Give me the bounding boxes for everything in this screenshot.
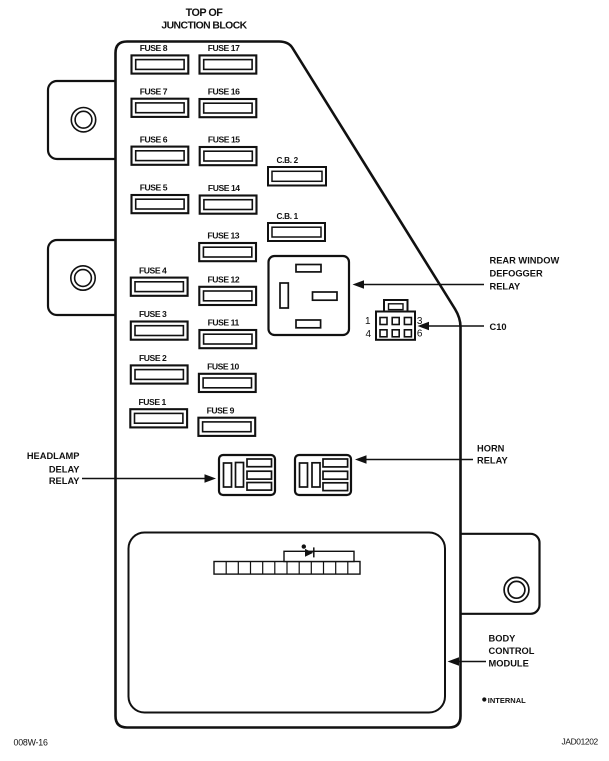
svg-text:FUSE 1: FUSE 1 xyxy=(139,397,167,407)
svg-text:FUSE 7: FUSE 7 xyxy=(140,86,168,96)
svg-text:HEADLAMP: HEADLAMP xyxy=(27,451,80,461)
svg-text:FUSE 14: FUSE 14 xyxy=(208,183,240,193)
svg-text:C10: C10 xyxy=(490,322,507,332)
svg-text:DEFOGGER: DEFOGGER xyxy=(490,268,543,278)
svg-text:FUSE 12: FUSE 12 xyxy=(208,275,240,285)
svg-text:FUSE 4: FUSE 4 xyxy=(139,265,167,275)
svg-text:JAD01202: JAD01202 xyxy=(562,737,599,747)
svg-text:FUSE 9: FUSE 9 xyxy=(207,405,235,415)
svg-text:C.B. 2: C.B. 2 xyxy=(277,156,299,165)
svg-text:FUSE 13: FUSE 13 xyxy=(207,231,239,241)
svg-text:HORN: HORN xyxy=(477,443,505,453)
svg-text:REAR WINDOW: REAR WINDOW xyxy=(490,255,560,265)
svg-text:RELAY: RELAY xyxy=(477,456,508,466)
svg-text:FUSE 11: FUSE 11 xyxy=(208,318,240,328)
svg-text:FUSE 15: FUSE 15 xyxy=(208,135,240,145)
svg-text:FUSE 17: FUSE 17 xyxy=(208,43,240,53)
svg-text:RELAY: RELAY xyxy=(490,282,521,292)
svg-text:FUSE 16: FUSE 16 xyxy=(208,87,240,97)
svg-text:JUNCTION BLOCK: JUNCTION BLOCK xyxy=(161,21,247,32)
svg-text:FUSE 8: FUSE 8 xyxy=(140,43,168,53)
svg-text:FUSE 2: FUSE 2 xyxy=(139,353,167,363)
svg-text:4: 4 xyxy=(365,329,371,340)
svg-text:TOP OF: TOP OF xyxy=(186,7,224,19)
svg-text:6: 6 xyxy=(417,329,423,340)
svg-text:DELAY: DELAY xyxy=(49,465,80,475)
svg-text:MODULE: MODULE xyxy=(489,659,529,669)
svg-text:INTERNAL: INTERNAL xyxy=(488,696,526,705)
svg-text:FUSE 10: FUSE 10 xyxy=(207,362,239,372)
svg-text:RELAY: RELAY xyxy=(49,476,80,486)
svg-text:FUSE 3: FUSE 3 xyxy=(139,309,167,319)
svg-text:CONTROL: CONTROL xyxy=(489,646,535,656)
svg-text:BODY: BODY xyxy=(489,633,517,643)
svg-text:FUSE 5: FUSE 5 xyxy=(140,183,168,193)
svg-text:FUSE 6: FUSE 6 xyxy=(140,134,168,144)
svg-text:008W-16: 008W-16 xyxy=(14,737,48,747)
svg-text:C.B. 1: C.B. 1 xyxy=(277,212,299,221)
svg-text:1: 1 xyxy=(365,316,371,327)
